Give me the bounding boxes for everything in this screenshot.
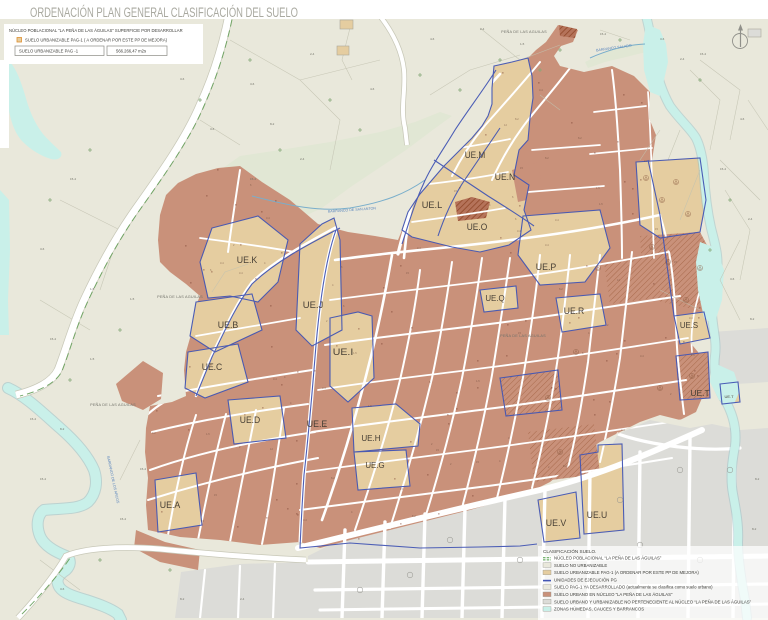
svg-text:1-5: 1-5 — [691, 353, 695, 357]
svg-text:SUELO URBANIZABLE PAG -1: SUELO URBANIZABLE PAG -1 — [19, 49, 79, 54]
svg-text:SUELO PAG-1 YA DESARROLLADO (a: SUELO PAG-1 YA DESARROLLADO (actualmente… — [554, 585, 713, 590]
svg-text:PEÑA DE LAS AGUILAS: PEÑA DE LAS AGUILAS — [157, 294, 203, 299]
svg-text:UE.A: UE.A — [160, 500, 181, 510]
svg-text:8-2: 8-2 — [578, 136, 582, 140]
svg-text:8-2: 8-2 — [515, 117, 519, 121]
svg-text:UE.L: UE.L — [422, 200, 443, 210]
svg-text:3-6: 3-6 — [250, 82, 255, 86]
svg-text:8-2: 8-2 — [563, 464, 567, 468]
svg-text:UE.Q: UE.Q — [485, 293, 505, 303]
svg-text:ZONAS HÚMEDAS, CAUCES Y BARRAN: ZONAS HÚMEDAS, CAUCES Y BARRANCOS — [554, 607, 644, 612]
svg-text:PEÑA DE LAS AGUILAS: PEÑA DE LAS AGUILAS — [501, 29, 547, 34]
svg-text:UE.T: UE.T — [690, 388, 710, 398]
svg-text:SUELO NO URBANIZABLE: SUELO NO URBANIZABLE — [554, 563, 607, 568]
svg-text:2-4: 2-4 — [480, 27, 485, 31]
svg-text:3-4: 3-4 — [555, 218, 559, 222]
svg-text:UE.S: UE.S — [680, 321, 699, 330]
svg-text:1-5: 1-5 — [599, 202, 603, 206]
svg-text:15-4: 15-4 — [50, 337, 56, 341]
svg-text:UE.H: UE.H — [361, 433, 380, 443]
svg-text:3-4: 3-4 — [689, 316, 693, 320]
svg-text:2-4: 2-4 — [300, 157, 305, 161]
svg-text:8-2: 8-2 — [755, 477, 760, 481]
svg-text:3-4: 3-4 — [621, 428, 625, 432]
svg-text:15-4: 15-4 — [140, 467, 146, 471]
svg-text:1-5: 1-5 — [353, 351, 357, 355]
svg-text:3-4: 3-4 — [517, 229, 521, 233]
svg-text:3-6: 3-6 — [180, 77, 185, 81]
svg-text:15-4: 15-4 — [70, 177, 76, 181]
svg-text:8-2: 8-2 — [545, 156, 549, 160]
svg-text:566.266,47 m2s: 566.266,47 m2s — [116, 49, 146, 54]
svg-text:15-4: 15-4 — [250, 177, 256, 181]
svg-text:CLASIFICACIÓN SUELO.: CLASIFICACIÓN SUELO. — [543, 548, 596, 554]
svg-text:3-4: 3-4 — [539, 88, 543, 92]
svg-text:UNIDADES DE EJECUCIÓN PG: UNIDADES DE EJECUCIÓN PG — [554, 577, 617, 582]
svg-text:UE.U: UE.U — [587, 510, 608, 520]
svg-text:SUELO URBANO Y URBANIZABLE NO: SUELO URBANO Y URBANIZABLE NO PERTENECIE… — [554, 599, 752, 604]
svg-text:PEÑA DE LAS AGUILAS: PEÑA DE LAS AGUILAS — [90, 402, 136, 407]
svg-text:8-2: 8-2 — [60, 427, 65, 431]
svg-text:8-2: 8-2 — [180, 597, 185, 601]
svg-text:UE.E: UE.E — [307, 419, 328, 429]
svg-text:3-4: 3-4 — [322, 386, 326, 390]
svg-text:4-6: 4-6 — [370, 87, 375, 91]
svg-text:UE.R: UE.R — [564, 306, 585, 316]
svg-text:8-2: 8-2 — [752, 527, 757, 531]
svg-text:ORDENACIÓN PLAN GENERAL CLASIF: ORDENACIÓN PLAN GENERAL CLASIFICACIÓN DE… — [30, 5, 298, 20]
svg-text:3-4: 3-4 — [266, 216, 270, 220]
svg-text:1-5: 1-5 — [368, 404, 372, 408]
svg-text:15-4: 15-4 — [120, 517, 126, 521]
svg-text:15-4: 15-4 — [700, 52, 706, 56]
svg-text:3-4: 3-4 — [545, 243, 549, 247]
svg-text:15-4: 15-4 — [30, 417, 36, 421]
svg-text:4-6: 4-6 — [740, 117, 745, 121]
svg-text:3-4: 3-4 — [417, 246, 421, 250]
svg-text:1-5: 1-5 — [90, 287, 95, 291]
svg-text:2-4: 2-4 — [680, 57, 685, 61]
svg-text:SUELO URBANIZABLE PAG-1 (A ORD: SUELO URBANIZABLE PAG-1 (A ORDENAR POR E… — [554, 570, 699, 575]
svg-text:PEÑA DE LAS AGUILAS: PEÑA DE LAS AGUILAS — [500, 333, 546, 338]
svg-text:15-4: 15-4 — [600, 32, 606, 36]
svg-text:3-6: 3-6 — [660, 37, 665, 41]
svg-text:3-4: 3-4 — [303, 518, 307, 522]
svg-text:NÚCLEO POBLACIONAL "LA PEÑA DE: NÚCLEO POBLACIONAL "LA PEÑA DE LAS ÁGUIL… — [9, 28, 183, 33]
svg-text:8-2: 8-2 — [750, 317, 755, 321]
svg-text:1-5: 1-5 — [130, 297, 135, 301]
svg-text:UE.T: UE.T — [724, 394, 734, 399]
svg-text:SUELO URBANO EN NÚCLEO “LA PEÑ: SUELO URBANO EN NÚCLEO “LA PEÑA DE LAS Á… — [554, 592, 673, 597]
svg-text:8-2: 8-2 — [559, 287, 563, 291]
svg-text:4-6: 4-6 — [430, 37, 435, 41]
svg-text:15-4: 15-4 — [720, 167, 726, 171]
svg-text:UE.J: UE.J — [303, 300, 324, 310]
svg-text:3-6: 3-6 — [730, 277, 735, 281]
svg-text:15-4: 15-4 — [40, 477, 46, 481]
svg-text:1-5: 1-5 — [476, 379, 480, 383]
svg-text:UE.O: UE.O — [467, 222, 488, 232]
svg-text:UE.B: UE.B — [218, 320, 239, 330]
svg-text:NÚCLEO POBLACIONAL “LA PEÑA DE: NÚCLEO POBLACIONAL “LA PEÑA DE LAS ÁGUIL… — [554, 556, 662, 561]
svg-text:8-2: 8-2 — [412, 514, 416, 518]
svg-text:UE.G: UE.G — [365, 460, 385, 470]
svg-text:2-4: 2-4 — [240, 597, 245, 601]
svg-text:8-2: 8-2 — [270, 122, 275, 126]
svg-text:2-4: 2-4 — [310, 52, 315, 56]
svg-text:SUELO URBANIZABLE PAG-1 ( A OR: SUELO URBANIZABLE PAG-1 ( A ORDENAR POR … — [25, 38, 168, 43]
svg-text:UE.V: UE.V — [546, 518, 567, 528]
svg-text:UE.I: UE.I — [333, 347, 354, 357]
svg-text:1-5: 1-5 — [596, 186, 600, 190]
svg-text:UE.M: UE.M — [465, 150, 486, 160]
svg-text:3-6: 3-6 — [210, 127, 215, 131]
svg-text:3-4: 3-4 — [239, 271, 243, 275]
svg-text:1-5: 1-5 — [206, 432, 210, 436]
svg-text:3-4: 3-4 — [273, 377, 277, 381]
svg-text:8-2: 8-2 — [331, 476, 335, 480]
svg-text:1-5: 1-5 — [90, 357, 95, 361]
svg-text:UE.D: UE.D — [240, 415, 261, 425]
svg-text:3-6: 3-6 — [40, 247, 45, 251]
svg-text:3-4: 3-4 — [220, 261, 224, 265]
svg-text:3-6: 3-6 — [60, 587, 65, 591]
svg-text:UE.C: UE.C — [202, 362, 223, 372]
svg-text:UE.K: UE.K — [237, 255, 258, 265]
svg-text:2-4: 2-4 — [748, 217, 753, 221]
svg-text:UE.N: UE.N — [495, 172, 516, 182]
svg-text:UE.P: UE.P — [536, 262, 557, 272]
svg-text:8-2: 8-2 — [152, 431, 156, 435]
svg-text:3-4: 3-4 — [640, 354, 644, 358]
svg-text:1-5: 1-5 — [520, 42, 525, 46]
